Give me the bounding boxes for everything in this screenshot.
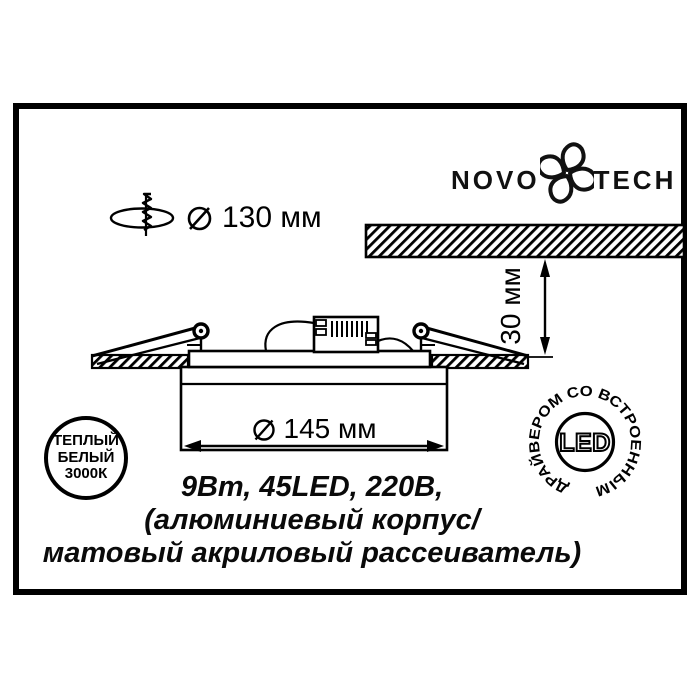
wire-left [265, 322, 314, 351]
spec-sheet-page: NOVO TECH [0, 0, 700, 700]
led-driver-box [314, 317, 378, 352]
body-diameter-value: 145 мм [284, 413, 377, 445]
fixture-flange [189, 351, 430, 367]
spec-line-diffuser: матовый акриловый рассеиватель) [0, 537, 624, 570]
recess-depth-label: 30 мм [496, 266, 526, 346]
diameter-symbol-icon [252, 417, 276, 442]
drill-hole-icon [111, 194, 173, 236]
wire-right [378, 338, 413, 351]
body-diameter-label: 145 мм [181, 413, 447, 445]
cutout-diameter-label: 130 мм [186, 201, 322, 235]
warm-white-badge: ТЕПЛЫЙ БЕЛЫЙ 3000К [44, 416, 128, 500]
ceiling-panel-hatched [366, 225, 684, 257]
cutout-diameter-value: 130 мм [222, 201, 322, 235]
warm-badge-line1: ТЕПЛЫЙ [53, 433, 119, 450]
warm-badge-line3: 3000К [65, 466, 108, 483]
warm-badge-line2: БЕЛЫЙ [58, 450, 115, 467]
spec-line-housing: (алюминиевый корпус/ [0, 504, 624, 537]
fixture-section-drawing [0, 0, 700, 700]
diameter-symbol-icon [186, 204, 213, 232]
